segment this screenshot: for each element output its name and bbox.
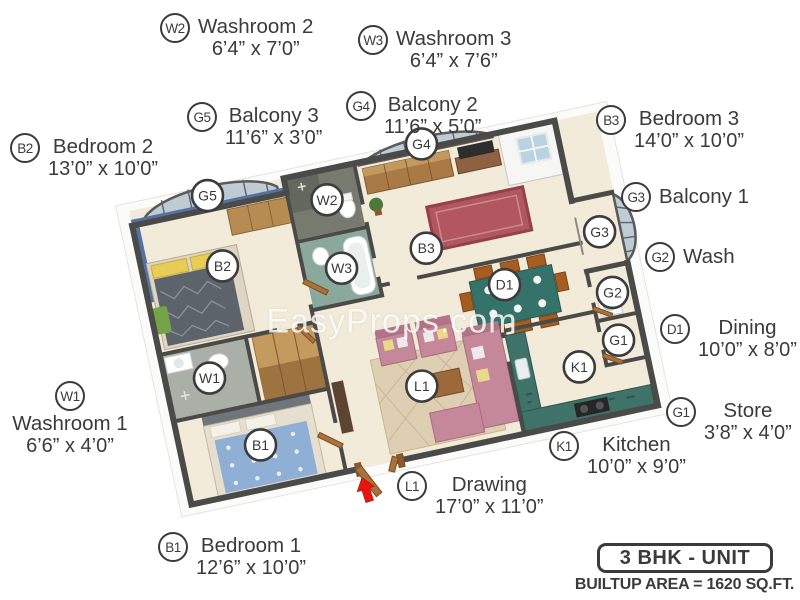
svg-text:G5: G5 [198,188,217,204]
room-name: Kitchen [602,434,670,456]
legend-washroom-1: W1 Washroom 1 6’6” x 4’0” [10,381,130,457]
svg-text:B3: B3 [418,240,435,256]
legend-wash: G2 Wash [645,242,735,272]
svg-text:W1: W1 [199,370,220,386]
svg-text:B1: B1 [252,437,269,453]
room-dims: 11’6” x 5’0” [384,116,481,138]
svg-text:W3: W3 [331,260,352,276]
legend-bedroom-1: B1 Bedroom 1 12’6” x 10’0” [158,532,306,579]
legend-circle-g4: G4 [346,91,376,121]
legend-circle-g1: G1 [666,397,696,427]
unit-type-badge: 3 BHK - UNIT [597,543,773,573]
legend-circle-b3: B3 [596,105,626,135]
legend-drawing: L1 Drawing 17’0” x 11’0” [397,471,544,518]
legend-circle-k1: K1 [549,431,579,461]
room-name: Bedroom 3 [639,108,739,130]
room-name: Bedroom 1 [201,535,301,557]
room-name: Balcony 2 [388,94,478,116]
legend-kitchen: K1 Kitchen 10’0” x 9’0” [549,431,686,478]
room-dims: 6’4” x 7’6” [410,50,498,72]
legend-circle-b1: B1 [158,532,188,562]
svg-text:W2: W2 [317,192,338,208]
room-dims: 3’8” x 4’0” [704,422,792,444]
legend-circle-w3: W3 [358,25,388,55]
legend-circle-g3: G3 [621,182,651,212]
room-name: Balcony 1 [659,186,749,208]
svg-text:G2: G2 [603,284,622,300]
builtup-area-text: BUILTUP AREA = 1620 SQ.FT. [572,576,797,594]
legend-bedroom-3: B3 Bedroom 3 14’0” x 10’0” [596,105,744,152]
legend-circle-b2: B2 [10,133,40,163]
room-dims: 17’0” x 11’0” [435,496,544,518]
legend-circle-w1: W1 [55,381,85,411]
room-name: Store [723,400,772,422]
legend-dining: D1 Dining 10’0” x 8’0” [660,314,797,361]
room-dims: 12’6” x 10’0” [196,557,306,579]
legend-bedroom-2: B2 Bedroom 2 13’0” x 10’0” [10,133,158,180]
watermark: EasyProps.com [266,303,517,342]
room-dims: 14’0” x 10’0” [634,130,744,152]
legend-balcony-1: G3 Balcony 1 [621,182,749,212]
room-name: Bedroom 2 [53,136,153,158]
floor-plan-page: G5 W2 G4 W3 B2 B3 W1 D1 G3 G2 [0,0,800,600]
room-name: Washroom 1 [12,413,127,435]
legend-circle-g5: G5 [187,102,217,132]
legend-circle-d1: D1 [660,314,690,344]
svg-text:B2: B2 [214,258,231,274]
room-name: Washroom 3 [396,28,511,50]
svg-text:K1: K1 [571,359,588,375]
room-name: Drawing [452,474,527,496]
room-name: Washroom 2 [198,16,313,38]
svg-text:L1: L1 [414,378,430,394]
room-dims: 6’4” x 7’0” [212,38,300,60]
legend-circle-w2: W2 [160,13,190,43]
room-name: Dining [718,317,776,339]
room-dims: 11’6” x 3’0” [225,127,322,149]
legend-balcony-3: G5 Balcony 3 11’6” x 3’0” [187,102,322,149]
room-dims: 10’0” x 8’0” [698,339,797,361]
legend-washroom-3: W3 Washroom 3 6’4” x 7’6” [358,25,511,72]
room-dims: 6’6” x 4’0” [26,435,114,457]
room-name: Wash [683,246,735,268]
room-name: Balcony 3 [229,105,319,127]
svg-text:D1: D1 [496,277,514,293]
legend-washroom-2: W2 Washroom 2 6’4” x 7’0” [160,13,313,60]
legend-circle-g2: G2 [645,242,675,272]
room-dims: 13’0” x 10’0” [48,158,158,180]
svg-text:G4: G4 [412,136,431,152]
svg-text:G3: G3 [590,224,609,240]
svg-text:G1: G1 [609,332,628,348]
legend-circle-l1: L1 [397,471,427,501]
legend-balcony-2: G4 Balcony 2 11’6” x 5’0” [346,91,481,138]
room-dims: 10’0” x 9’0” [587,456,686,478]
